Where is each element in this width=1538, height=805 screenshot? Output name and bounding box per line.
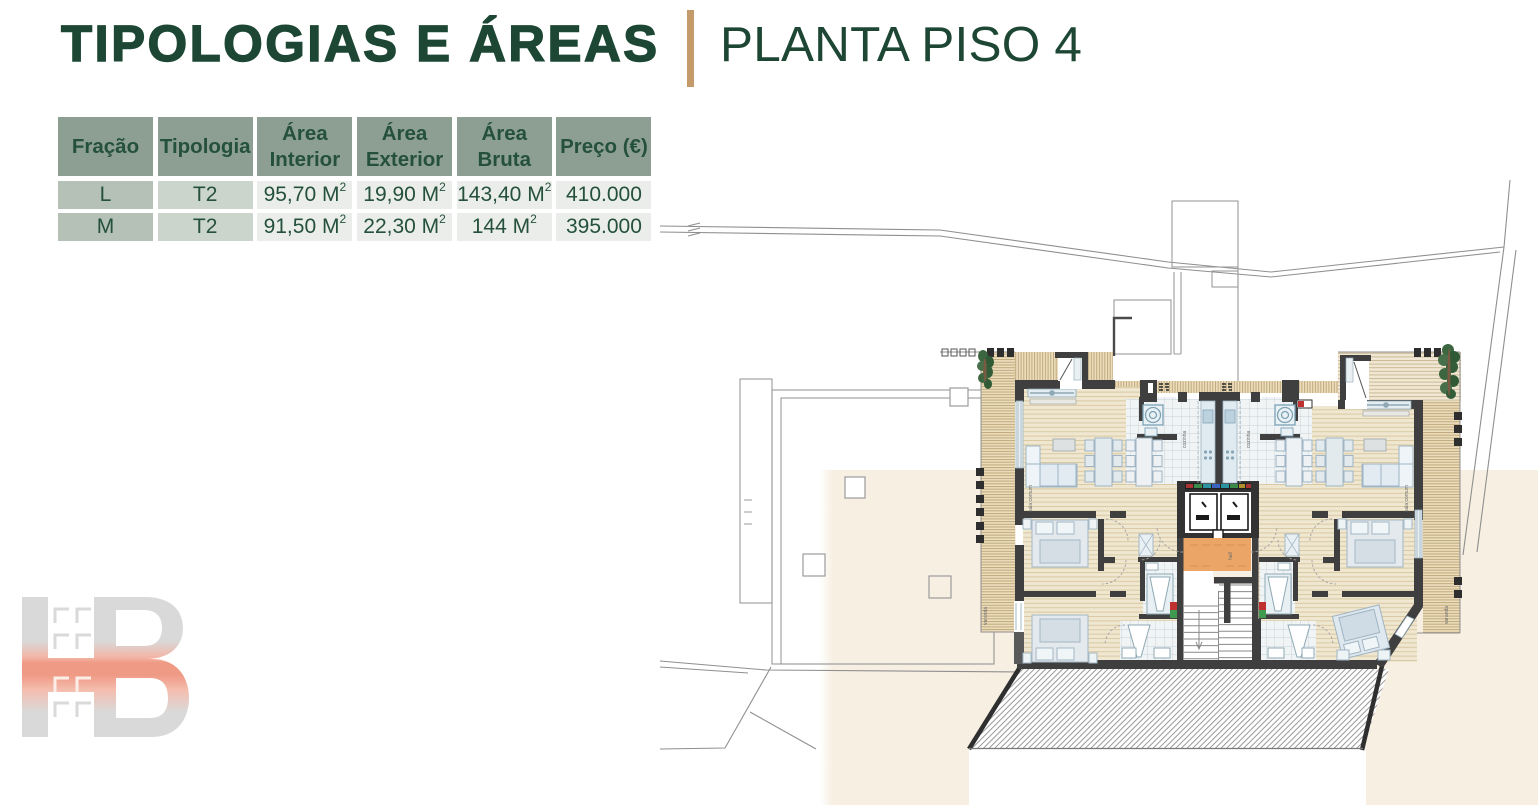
- svg-text:cozinha: cozinha: [1246, 431, 1252, 448]
- svg-text:varanda: varanda: [1444, 606, 1450, 624]
- svg-text:sala comum: sala comum: [1404, 485, 1410, 512]
- svg-text:sala comum: sala comum: [1028, 485, 1034, 512]
- svg-text:hall: hall: [1228, 552, 1234, 560]
- svg-text:varanda: varanda: [983, 607, 989, 625]
- svg-text:cozinha: cozinha: [1182, 431, 1188, 448]
